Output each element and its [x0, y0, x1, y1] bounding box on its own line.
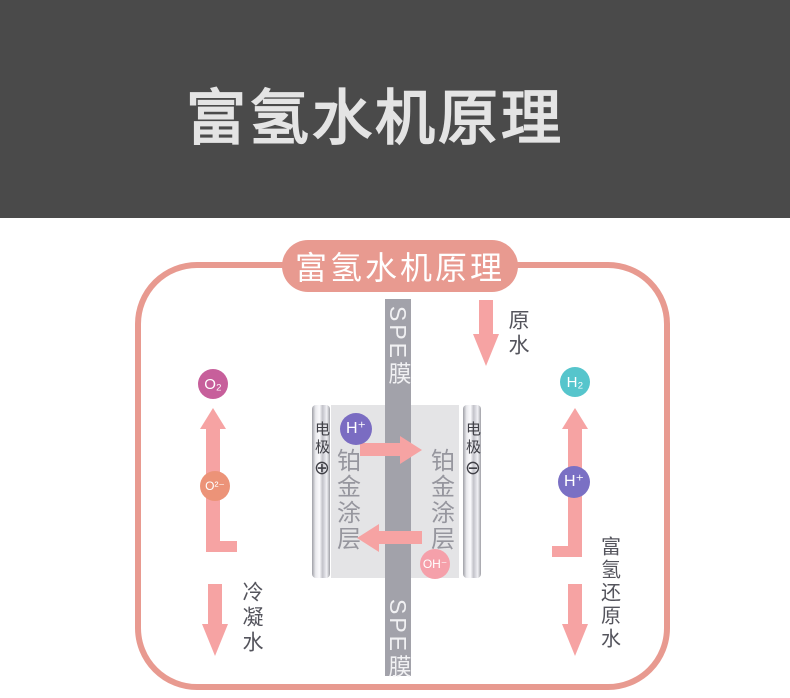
- hydroxide-left-arrow-body: [379, 531, 422, 544]
- proton-right-arrow-head: [400, 436, 422, 464]
- hydrogen-water-arrow-head: [562, 624, 588, 656]
- electrode-anode-label: 电极⊕: [310, 421, 332, 482]
- header-banner: 富氢水机原理: [0, 0, 790, 218]
- hydrogen-up-arrow-head: [562, 408, 588, 429]
- platinum-coating-right-label: 铂金涂层: [423, 448, 458, 552]
- raw-water-arrow-head: [473, 334, 499, 366]
- o2-molecule-badge: O₂: [198, 369, 228, 399]
- raw-water-arrow-body: [479, 300, 493, 336]
- page: 富氢水机原理 富氢水机原理 SPE膜 SPE膜 电极⊕ 电极⊖ 铂金涂层 铂金涂…: [0, 0, 790, 698]
- hydrogen-up-arrow-foot: [552, 546, 582, 557]
- proton-right-arrow-body: [360, 443, 400, 456]
- hydrogen-rich-water-label: 富氢还原水: [595, 536, 624, 651]
- hydroxide-left-arrow-head: [357, 524, 379, 552]
- plus-circle-icon: ⊕: [311, 457, 332, 482]
- oxygen-up-arrow-foot: [206, 541, 237, 552]
- hydrogen-ion-left-badge: H⁺: [340, 413, 372, 445]
- h2-molecule-badge: H₂: [560, 367, 590, 397]
- hydrogen-ion-right-badge: H⁺: [558, 466, 590, 498]
- condensed-water-arrow-head: [202, 624, 228, 656]
- spe-membrane-label-bottom: SPE膜: [381, 599, 415, 680]
- diagram-title-pill: 富氢水机原理: [282, 240, 518, 292]
- condensed-water-label: 冷凝水: [236, 581, 266, 656]
- oxygen-up-arrow-head: [200, 408, 226, 429]
- raw-water-label: 原水: [502, 309, 532, 359]
- hydroxide-ion-badge: OH⁻: [420, 549, 450, 579]
- condensed-water-arrow-body: [208, 584, 222, 626]
- hydrogen-water-arrow-body: [568, 584, 582, 626]
- oxygen-ion-badge: O²⁻: [200, 471, 230, 501]
- electrode-cathode-label: 电极⊖: [461, 421, 483, 482]
- minus-circle-icon: ⊖: [462, 457, 483, 482]
- spe-membrane-label-top: SPE膜: [381, 306, 415, 387]
- page-title: 富氢水机原理: [186, 70, 564, 157]
